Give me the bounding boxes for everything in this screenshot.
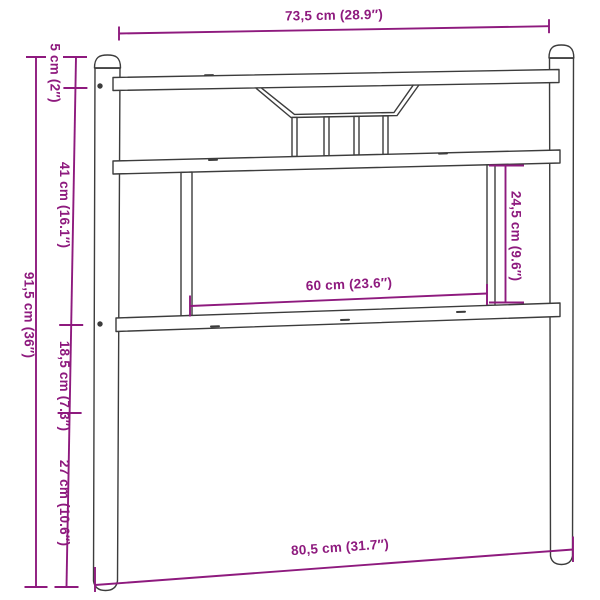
dim-label-panel-height: 24,5 cm (9.6″) [508,191,523,281]
screw-dot-top [97,83,102,88]
dim-label-total-height: 91,5 cm (36″) [21,272,36,358]
headboard-drawing [94,45,574,591]
dim-label-lower-section: 27 cm (10.6″) [57,460,72,546]
dimension-diagram-page: 73,5 cm (28.9″) 91,5 cm (36″) 5 cm (2″) [0,0,600,600]
dimension-total-width: 80,5 cm (31.7″) [95,536,573,592]
ornament-slats [292,116,388,157]
top-rail [113,70,559,91]
panel-right-bar [487,165,495,306]
panel-left-bar [181,172,192,316]
dimension-left-segments: 5 cm (2″) 41 cm (16.1″) 18,5 cm (7.3″) 2… [47,43,87,587]
dim-label-total-width: 80,5 cm (31.7″) [291,536,390,558]
dim-label-cap-height: 5 cm (2″) [47,43,62,102]
screw-dot-bottom [97,321,102,326]
dim-label-top-width: 73,5 cm (28.9″) [285,7,383,24]
dim-label-upper-section: 41 cm (16.1″) [57,162,72,248]
headboard-dimension-diagram: 73,5 cm (28.9″) 91,5 cm (36″) 5 cm (2″) [0,0,600,600]
dimension-top-width: 73,5 cm (28.9″) [119,7,549,41]
dimension-total-height: 91,5 cm (36″) [21,57,47,587]
dim-label-middle-section: 18,5 cm (7.3″) [57,341,72,431]
dim-label-panel-width: 60 cm (23.6″) [306,275,393,294]
ornament-bracket [256,85,419,118]
